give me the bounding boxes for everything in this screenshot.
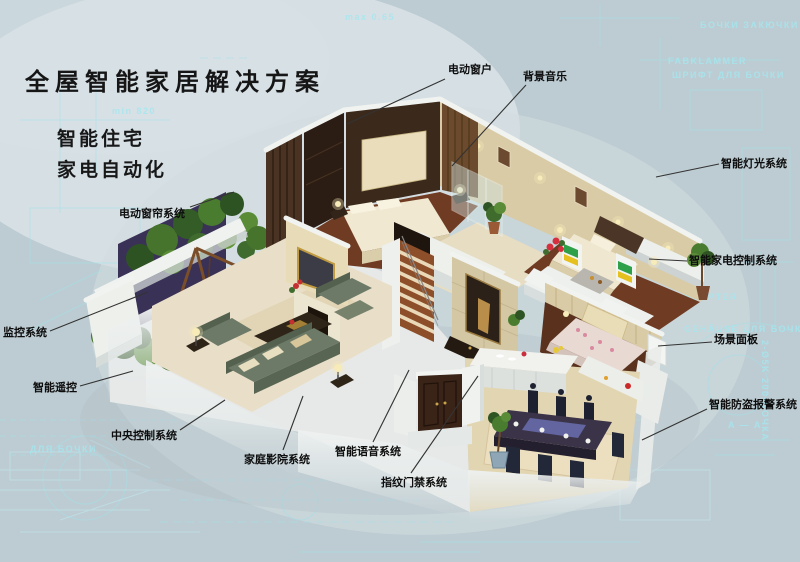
label-smart-lighting: 智能灯光系统 [721, 155, 787, 171]
subtitle-smart-residence: 智能住宅 [57, 124, 145, 151]
label-voice-system: 智能语音系统 [335, 443, 401, 459]
blueprint-text: ДЛЯ БОЧКИ [30, 444, 97, 454]
label-appliance-control: 智能家电控制系统 [689, 252, 777, 268]
label-electric-window: 电动窗户 [448, 61, 492, 77]
label-fingerprint-access: 指纹门禁系统 [381, 474, 447, 490]
subtitle-appliance-automation: 家电自动化 [57, 155, 167, 182]
blueprint-text: 2-Ø5K 200-БОЧКА [760, 340, 770, 441]
page-title: 全屋智能家居解决方案 [25, 62, 325, 97]
label-background-music: 背景音乐 [523, 68, 567, 84]
label-burglar-alarm: 智能防盗报警系统 [709, 396, 797, 412]
blueprint-text: A — A [728, 420, 762, 430]
blueprint-text: БОЧКИ ЗАКЮЧКИ [700, 20, 799, 30]
label-smart-remote: 智能遥控 [33, 379, 77, 395]
blueprint-text: ШРИФТ ДЛЯ БОЧКИ [672, 70, 785, 80]
label-home-theater: 家庭影院系统 [244, 451, 310, 467]
smart-home-poster: max 0.65 min 820 БОЧКИ ЗАКЮЧКИ FABKLAMME… [0, 0, 800, 562]
label-central-control: 中央控制系统 [111, 427, 177, 443]
label-monitoring: 监控系统 [3, 324, 47, 340]
label-electric-curtain: 电动窗帘系统 [119, 205, 185, 221]
blueprint-text: min 820 [112, 106, 156, 116]
blueprint-text: FABKLAMMER [668, 56, 747, 66]
blueprint-text: max 0.65 [345, 12, 395, 22]
label-scene-panel: 场景面板 [714, 331, 758, 347]
